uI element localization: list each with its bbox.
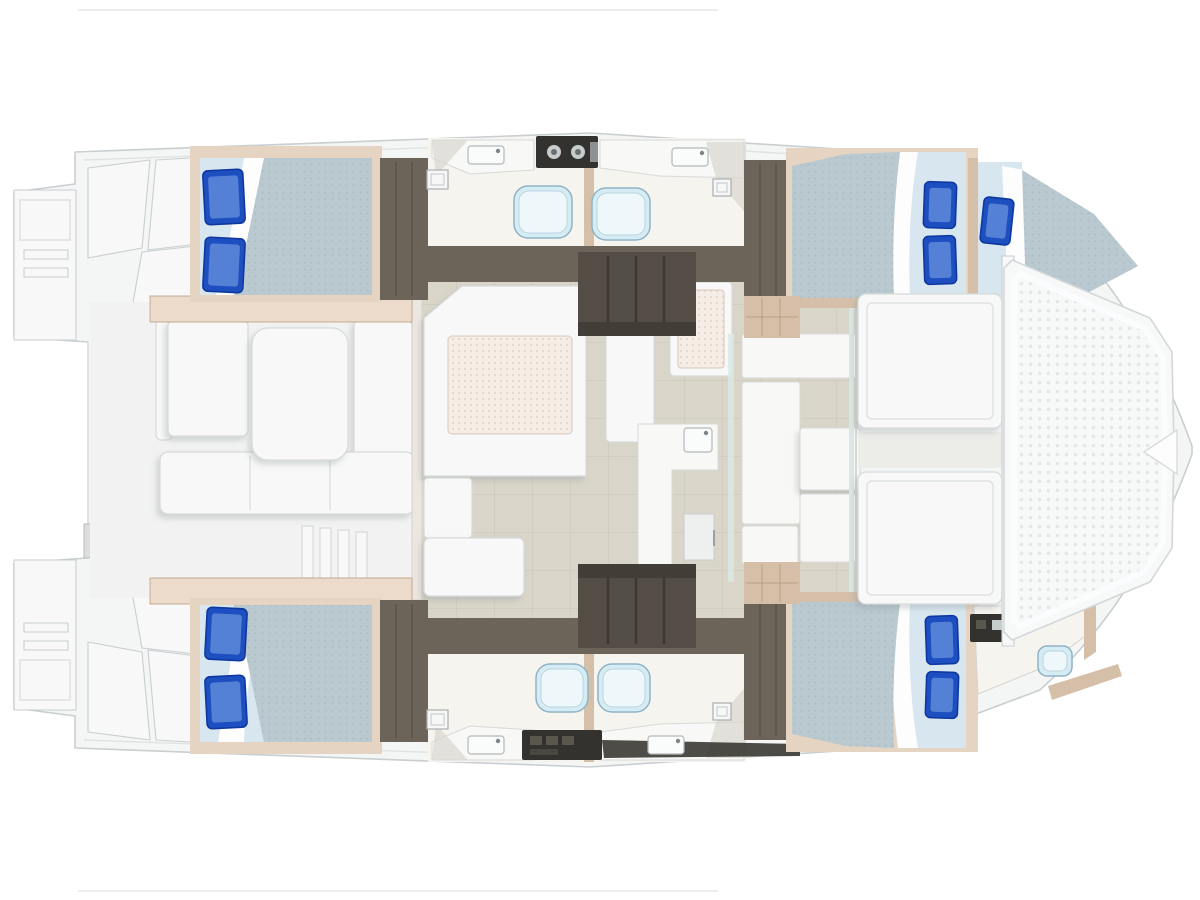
toilet xyxy=(1038,646,1072,676)
lounge-pad xyxy=(858,294,1002,428)
pillow xyxy=(923,181,957,228)
cockpit-bench xyxy=(160,452,414,514)
pillow xyxy=(203,237,246,293)
sink xyxy=(648,736,684,754)
catamaran-layout-plan xyxy=(0,0,1200,900)
refrigerator xyxy=(684,514,714,560)
salon-bench xyxy=(424,478,472,538)
wardrobe xyxy=(744,160,792,300)
sink xyxy=(672,148,708,166)
salon-forward-window xyxy=(849,306,854,594)
stove-unit xyxy=(536,136,598,168)
toilet xyxy=(514,186,572,238)
hatch xyxy=(713,703,731,720)
pillow xyxy=(205,675,248,729)
pillow xyxy=(203,169,246,225)
wardrobe xyxy=(744,600,792,740)
cockpit-bench xyxy=(168,320,248,436)
pillow xyxy=(923,235,957,284)
hatch xyxy=(713,179,731,196)
sink xyxy=(684,428,712,452)
pillow xyxy=(925,615,959,664)
hatch xyxy=(427,170,448,189)
trampoline xyxy=(1004,260,1177,640)
cockpit-table xyxy=(252,328,348,460)
companionway-steps xyxy=(578,252,696,336)
floor-plan-canvas xyxy=(0,0,1200,900)
salon-aft-wall xyxy=(412,282,422,600)
toilet xyxy=(598,664,650,712)
starboard-transom-platform xyxy=(14,560,76,710)
galley-counter xyxy=(742,382,800,524)
aft-cockpit xyxy=(90,302,414,598)
swim-ladder xyxy=(24,250,68,259)
companionway-steps xyxy=(578,564,696,648)
port-transom-platform xyxy=(14,190,76,340)
lounge-pad xyxy=(858,472,1002,604)
sink xyxy=(468,146,504,164)
hatch xyxy=(427,710,448,729)
pillow xyxy=(925,671,959,718)
pillow xyxy=(205,607,248,661)
galley-counter xyxy=(742,334,856,378)
trampoline-net xyxy=(1014,274,1165,626)
pillow xyxy=(980,197,1015,246)
galley-counter xyxy=(800,494,856,562)
sink xyxy=(468,736,504,754)
glass-partition xyxy=(728,334,734,582)
salon-bench xyxy=(424,538,524,596)
swim-ladder xyxy=(24,623,68,632)
cockpit-bench xyxy=(354,320,412,464)
toilet xyxy=(592,188,650,240)
galley-counter xyxy=(742,526,798,564)
toilet xyxy=(536,664,588,712)
